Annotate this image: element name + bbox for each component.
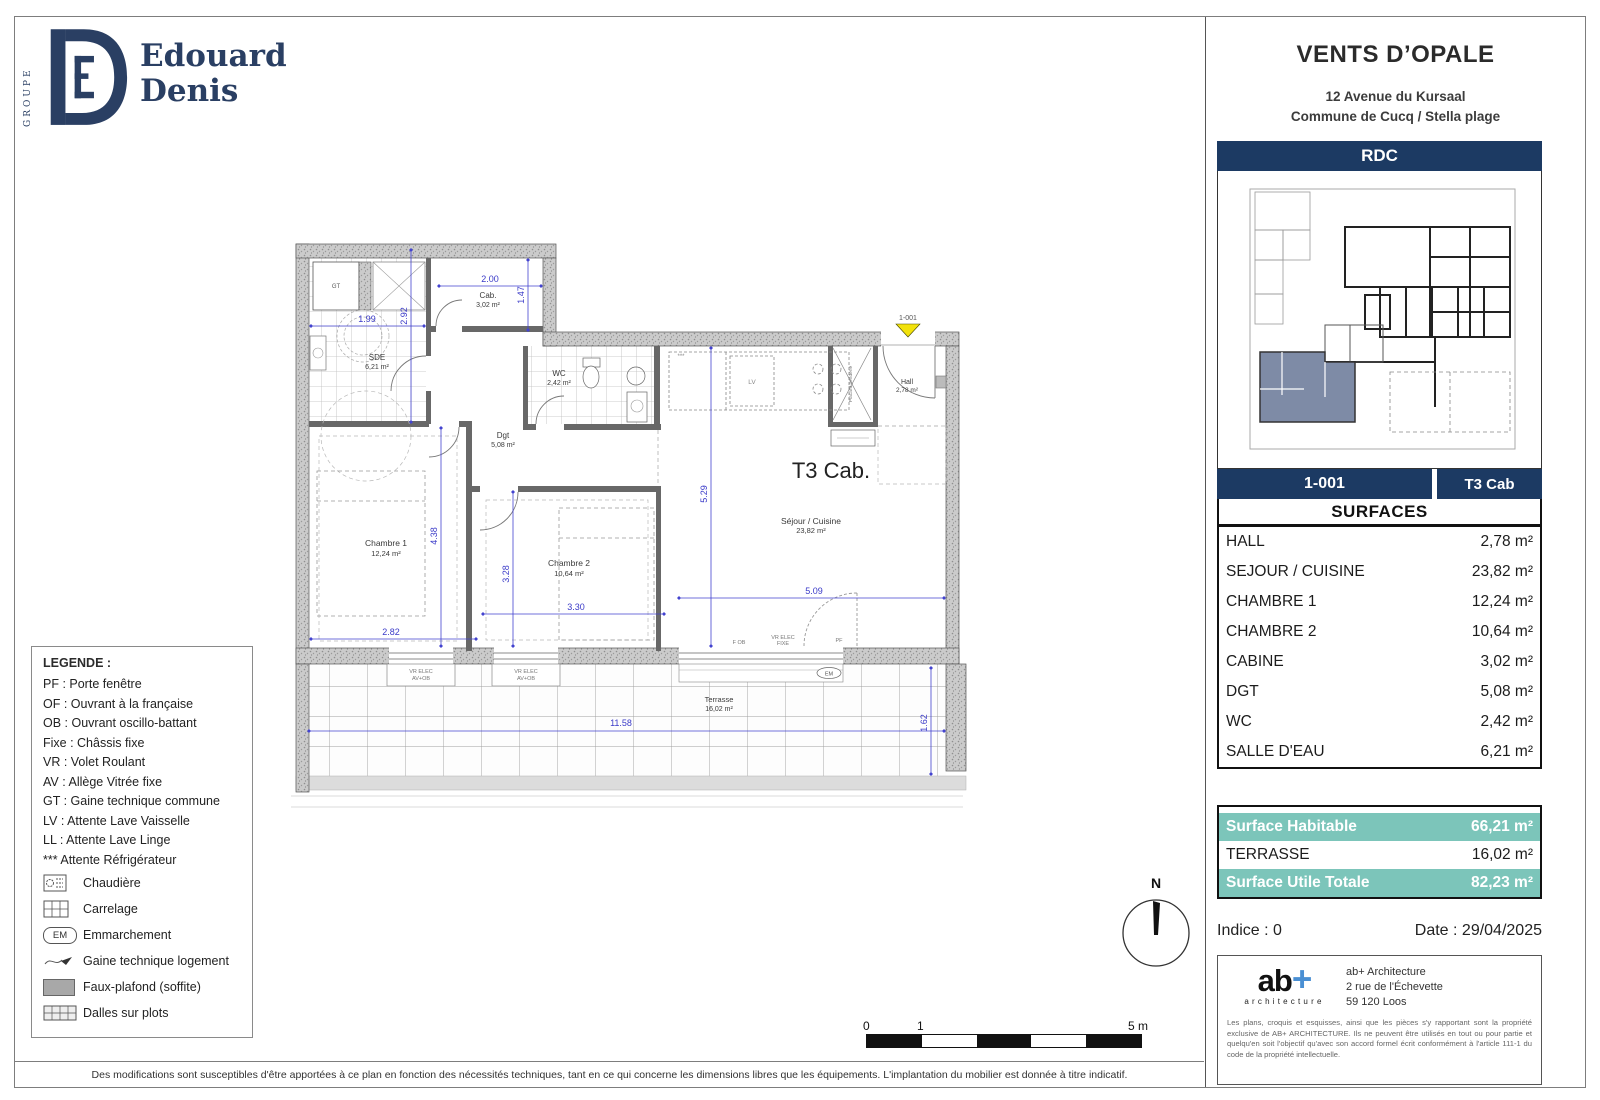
key-plan-box — [1217, 171, 1542, 469]
north-label: N — [1111, 875, 1201, 891]
legend-item: LL : Attente Lave Linge — [43, 831, 241, 851]
w1-avob-tag: AV+OB — [412, 676, 430, 682]
compass-icon — [1116, 891, 1196, 971]
legend-box: LEGENDE : PF : Porte fenêtre OF : Ouvran… — [31, 646, 253, 1038]
floor-plan: 2.00 1.47 1.99 2.92 5.29 5.09 4.38 2.82 … — [291, 236, 971, 821]
room-cab-area: 3,02 m² — [476, 302, 500, 309]
room-hall-name: Hall — [901, 379, 914, 386]
meta-row: Indice : 0 Date : 29/04/2025 — [1217, 922, 1542, 940]
legend-title: LEGENDE : — [43, 656, 241, 670]
scale-bar-segments — [866, 1034, 1142, 1048]
unit-band: 1-001 T3 Cab — [1217, 469, 1542, 499]
dim-ch1-width: 2.82 — [382, 627, 400, 637]
dalles-icon — [43, 1005, 77, 1021]
room-terrasse-area: 16,02 m² — [705, 706, 733, 713]
legend-icon-item: EM Emmarchement — [43, 922, 241, 948]
legend-item: VR : Volet Roulant — [43, 753, 241, 773]
fridge-tag: *** — [677, 354, 685, 360]
legend-icon-item: Carrelage — [43, 896, 241, 922]
dim-cab-width: 2.00 — [481, 274, 499, 284]
level-band: RDC — [1217, 141, 1542, 171]
lv-tag: LV — [748, 379, 756, 386]
room-sejour-area: 23,82 m² — [796, 526, 826, 535]
table-row: CHAMBRE 2 10,64 m² — [1219, 617, 1540, 647]
plus-icon: + — [1292, 960, 1311, 999]
project-address: 12 Avenue du Kursaal Commune de Cucq / S… — [1206, 87, 1585, 127]
dim-terrasse-height: 1.62 — [919, 714, 929, 732]
brand-name-line1: Edouard — [140, 39, 287, 74]
legend-icon-item: Dalles sur plots — [43, 1000, 241, 1026]
room-hall-area: 2,78 m² — [896, 387, 919, 394]
groupe-label: GROUPE — [23, 23, 33, 129]
vr-fixe-tag2: FIXE — [777, 641, 790, 647]
dim-ch2-width: 3.30 — [567, 602, 585, 612]
project-title: VENTS D’OPALE — [1206, 41, 1585, 69]
room-sde-name: SDE — [369, 353, 385, 362]
room-wc-name: WC — [552, 369, 566, 378]
legend-item: PF : Porte fenêtre — [43, 675, 241, 695]
architect-address-line2: 59 120 Loos — [1346, 995, 1443, 1010]
room-dgt-name: Dgt — [497, 431, 510, 440]
compass: N — [1111, 875, 1201, 976]
table-row: WC 2,42 m² — [1219, 707, 1540, 737]
pf-tag: PF — [835, 638, 843, 644]
placard-label: Placard penderie — [848, 366, 854, 403]
legend-item: OB : Ouvrant oscillo-battant — [43, 714, 241, 734]
gt-tag: GT — [332, 284, 341, 290]
edouard-denis-logo: GROUPE Edouard Denis — [23, 23, 287, 133]
table-row: CABINE 3,02 m² — [1219, 647, 1540, 677]
scale-tick-5: 5 m — [1128, 1019, 1148, 1033]
table-row: SALLE D'EAU 6,21 m² — [1219, 737, 1540, 767]
legend-icon-item: Faux-plafond (soffite) — [43, 974, 241, 1000]
footer-strip: Des modifications sont susceptibles d'êt… — [15, 1061, 1204, 1087]
room-cab-name: Cab. — [480, 291, 497, 300]
architect-address: ab+ Architecture 2 rue de l'Échevette 59… — [1346, 965, 1443, 1010]
dim-ch2-height: 3.28 — [501, 565, 511, 583]
dim-ch1-height: 4.38 — [429, 527, 439, 545]
ed-monogram-icon — [36, 23, 128, 133]
abplus-logo: ab+ architecture — [1232, 964, 1337, 1006]
total-terrasse-row: TERRASSE 16,02 m² — [1219, 841, 1540, 869]
legend-icon-item: Chaudière — [43, 870, 241, 896]
table-row: CHAMBRE 1 12,24 m² — [1219, 587, 1540, 617]
legend-item: GT : Gaine technique commune — [43, 792, 241, 812]
room-ch1-area: 12,24 m² — [371, 549, 401, 558]
total-habitable-row: Surface Habitable 66,21 m² — [1219, 813, 1540, 841]
footer-disclaimer: Des modifications sont susceptibles d'êt… — [92, 1069, 1128, 1081]
legend-item: OF : Ouvrant à la française — [43, 695, 241, 715]
key-plan-drawing — [1230, 177, 1530, 462]
date-label: Date : 29/04/2025 — [1415, 922, 1542, 940]
room-ch2-area: 10,64 m² — [554, 569, 584, 578]
totals-box: Surface Habitable 66,21 m² TERRASSE 16,0… — [1217, 805, 1542, 899]
legend-item: *** Attente Réfrigérateur — [43, 851, 241, 871]
dim-terrasse-width: 11.58 — [610, 718, 632, 728]
legend-item: AV : Allège Vitrée fixe — [43, 773, 241, 793]
architect-notice: Les plans, croquis et esquisses, ainsi q… — [1218, 1018, 1541, 1060]
legend-icon-item: Gaine technique logement — [43, 948, 241, 974]
dim-sejour-width: 5.09 — [805, 586, 823, 596]
total-utile-row: Surface Utile Totale 82,23 m² — [1219, 869, 1540, 897]
unit-number: 1-001 — [1217, 469, 1432, 499]
project-address-line2: Commune de Cucq / Stella plage — [1206, 107, 1585, 127]
legend-item: LV : Attente Lave Vaisselle — [43, 812, 241, 832]
faux-plafond-icon — [43, 979, 75, 996]
surfaces-table: HALL 2,78 m² SEJOUR / CUISINE 23,82 m² C… — [1217, 527, 1542, 769]
abplus-logo-sub: architecture — [1232, 997, 1337, 1006]
room-sejour-name: Séjour / Cuisine — [781, 516, 841, 526]
indice-label: Indice : 0 — [1217, 922, 1282, 940]
w2-vr-tag: VR ELEC — [514, 669, 538, 675]
carrelage-icon — [43, 900, 69, 918]
room-wc-area: 2,42 m² — [547, 380, 571, 387]
scale-bar: 0 1 5 m — [866, 1019, 1142, 1049]
em-icon: EM — [43, 927, 77, 944]
surfaces-header: SURFACES — [1217, 499, 1542, 527]
architect-name: ab+ Architecture — [1346, 965, 1443, 980]
unit-type: T3 Cab — [1437, 469, 1542, 499]
legend-item: Fixe : Châssis fixe — [43, 734, 241, 754]
architect-address-line1: 2 rue de l'Échevette — [1346, 980, 1443, 995]
entrance-door-tag: 1-001 — [899, 315, 917, 322]
sidebar: VENTS D’OPALE 12 Avenue du Kursaal Commu… — [1205, 17, 1585, 1087]
table-row: DGT 5,08 m² — [1219, 677, 1540, 707]
scale-tick-1: 1 — [917, 1019, 924, 1033]
room-sde-area: 6,21 m² — [365, 364, 389, 371]
scale-tick-0: 0 — [863, 1019, 870, 1033]
room-terrasse-name: Terrasse — [705, 695, 734, 704]
plan-sheet: GROUPE Edouard Denis — [0, 0, 1600, 1100]
dim-sejour-height: 5.29 — [699, 485, 709, 503]
sheet-frame: GROUPE Edouard Denis — [14, 16, 1586, 1088]
unit-type-label: T3 Cab. — [792, 458, 870, 483]
dim-sde-width: 1.99 — [358, 314, 376, 324]
table-row: HALL 2,78 m² — [1219, 527, 1540, 557]
architect-box: ab+ architecture ab+ Architecture 2 rue … — [1217, 955, 1542, 1085]
dim-sde-height: 2.92 — [399, 307, 409, 325]
brand-name-line2: Denis — [140, 74, 287, 109]
dim-cab-height: 1.47 — [516, 286, 526, 304]
gaine-icon — [43, 953, 77, 969]
table-row: SEJOUR / CUISINE 23,82 m² — [1219, 557, 1540, 587]
w1-vr-tag: VR ELEC — [409, 669, 433, 675]
room-ch1-name: Chambre 1 — [365, 538, 407, 548]
brand-name: Edouard Denis — [140, 23, 287, 109]
fob-tag: F OB — [733, 640, 746, 646]
room-ch2-name: Chambre 2 — [548, 558, 590, 568]
em-tag: EM — [825, 672, 834, 678]
project-address-line1: 12 Avenue du Kursaal — [1206, 87, 1585, 107]
w2-avob-tag: AV+OB — [517, 676, 535, 682]
chaudiere-icon — [43, 874, 67, 892]
room-dgt-area: 5,08 m² — [491, 442, 515, 449]
